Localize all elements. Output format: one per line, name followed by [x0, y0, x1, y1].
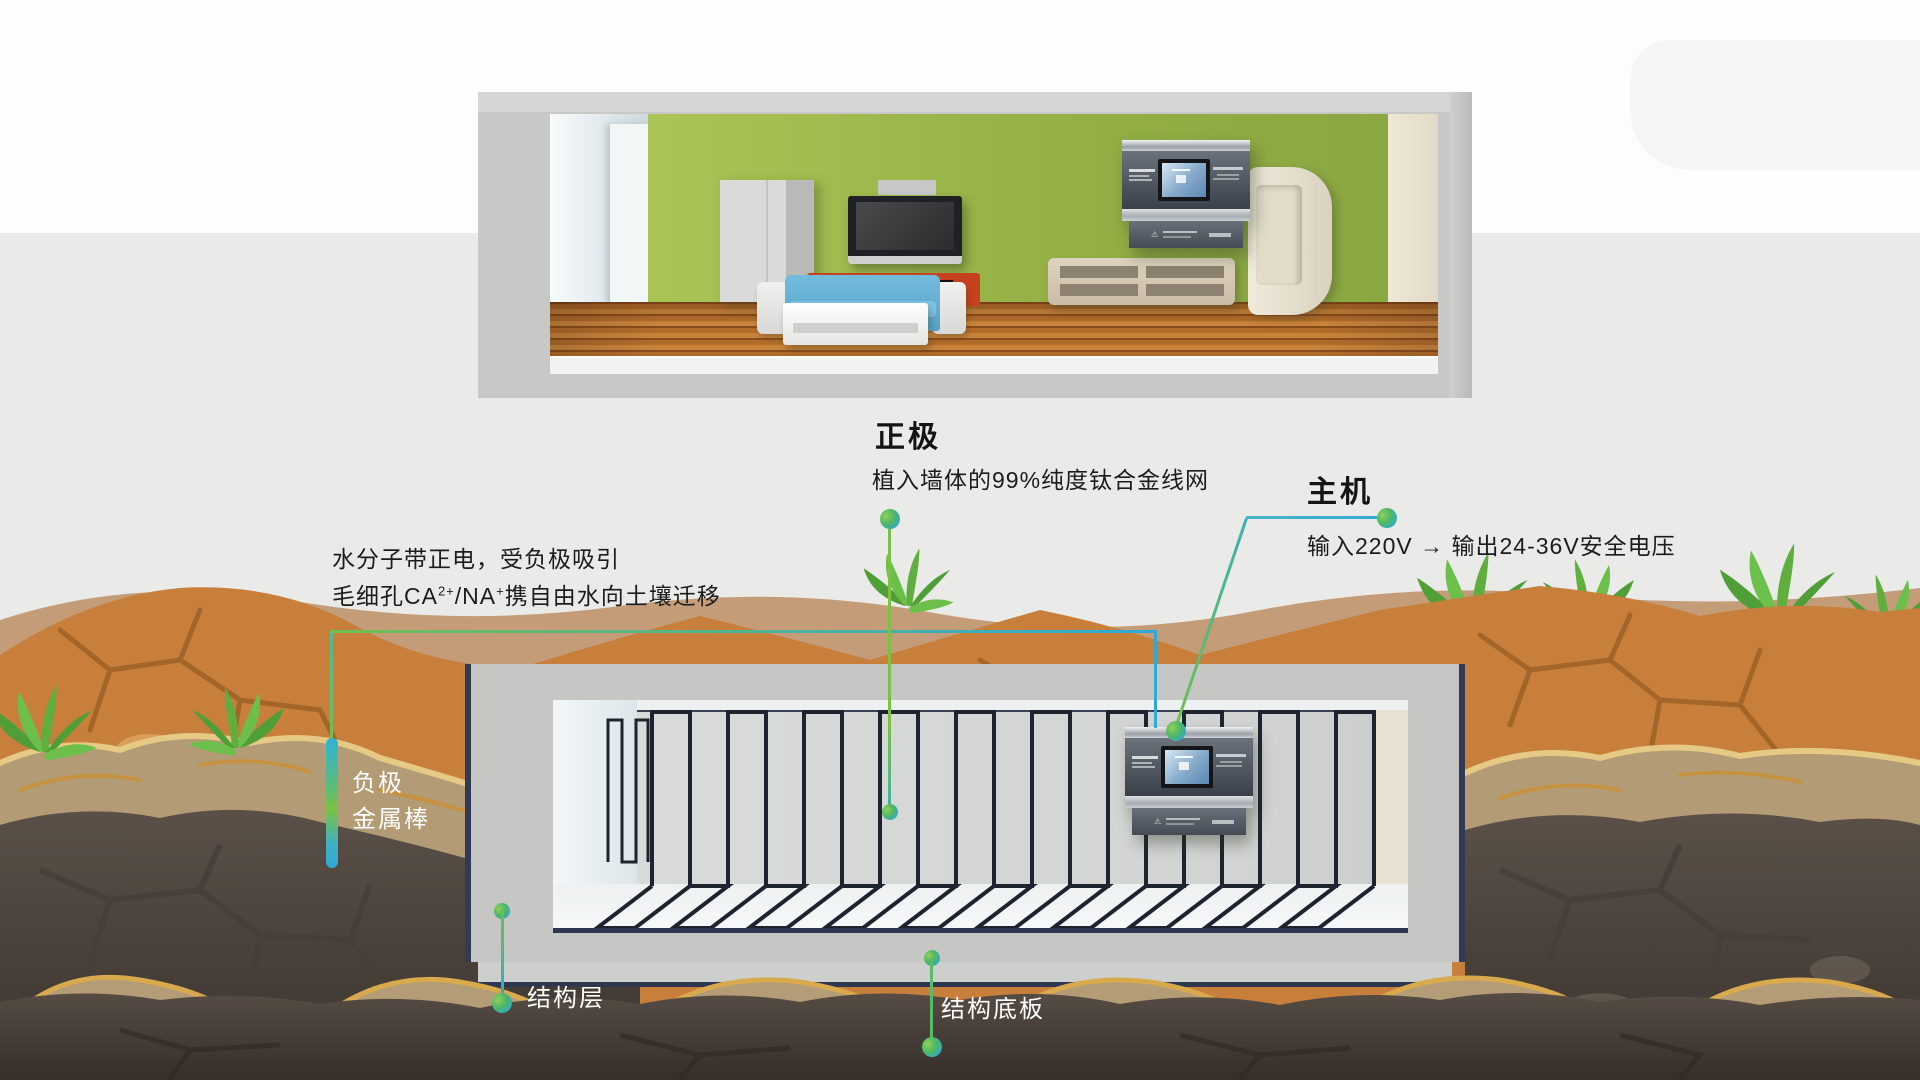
- host-title: 主机: [1307, 467, 1373, 511]
- device-lower-panel: ⚠: [1129, 221, 1243, 248]
- device-model-text: [1216, 754, 1246, 768]
- device-logo: [1132, 756, 1158, 768]
- container-right-face: [1450, 92, 1472, 398]
- connector-dot-device: [1166, 721, 1186, 741]
- device-body: [1125, 738, 1253, 796]
- positive-title: 正极: [875, 412, 941, 456]
- structure-layer-label: 结构层: [527, 981, 605, 1017]
- connector-structure-layer-line: [501, 911, 504, 1003]
- living-room-interior: ⚠: [550, 114, 1438, 374]
- host-device-basement: ⚠: [1125, 727, 1253, 835]
- device-screen: [1158, 159, 1210, 201]
- device-lower-panel: ⚠: [1132, 808, 1246, 835]
- background-highlight: [1630, 40, 1920, 170]
- migration-note-line1: 水分子带正电，受负极吸引: [332, 540, 620, 574]
- basement-floor-edge: [553, 928, 1408, 933]
- wall-tv: [848, 196, 962, 264]
- positive-desc: 植入墙体的99%纯度钛合金线网: [872, 461, 1209, 495]
- host-desc: 输入220V → 输出24-36V安全电压: [1307, 527, 1676, 561]
- container-top-face: [478, 92, 1472, 112]
- connector-dot-structure-base-bottom: [922, 1037, 942, 1057]
- connector-dot-host: [1377, 508, 1397, 528]
- connector-host-horizontal: [1246, 516, 1386, 519]
- device-bottom-band: [1122, 209, 1250, 221]
- electro-osmosis-diagram: ⚠: [0, 0, 1920, 1080]
- device-body: [1122, 151, 1250, 209]
- device-bottom-band: [1125, 796, 1253, 808]
- connector-negative-vertical-right: [1154, 630, 1157, 728]
- device-model-text: [1213, 167, 1243, 181]
- device-top-band: [1125, 727, 1253, 738]
- electrode-mesh: [553, 700, 1408, 933]
- connector-dot-positive-top: [880, 509, 900, 529]
- migration-note-line2: 毛细孔CA2+/NA+携自由水向土壤迁移: [332, 577, 721, 611]
- connector-positive-vertical: [888, 521, 891, 811]
- negative-rod: [326, 738, 338, 868]
- curved-shelf-unit: [1248, 167, 1332, 315]
- connector-negative-horizontal: [330, 630, 1157, 633]
- connector-dot-positive-bottom: [882, 804, 898, 820]
- connector-structure-base-line: [930, 958, 933, 1046]
- structure-base-label: 结构底板: [941, 992, 1045, 1028]
- connector-dot-structure-layer-bottom: [492, 993, 512, 1013]
- device-logo: [1129, 169, 1155, 181]
- negative-rod-label: 负极 金属棒: [352, 766, 430, 838]
- tv-speaker-box: [878, 180, 936, 195]
- basement-interior: ⚠: [553, 700, 1408, 933]
- connector-negative-vertical-left: [330, 631, 333, 741]
- floor-front-sill: [550, 358, 1438, 374]
- tan-tv-cabinet: [1048, 258, 1235, 305]
- device-top-band: [1122, 140, 1250, 151]
- coffee-table: [783, 303, 928, 345]
- host-device-living-room: ⚠: [1122, 140, 1250, 248]
- device-screen: [1161, 746, 1213, 788]
